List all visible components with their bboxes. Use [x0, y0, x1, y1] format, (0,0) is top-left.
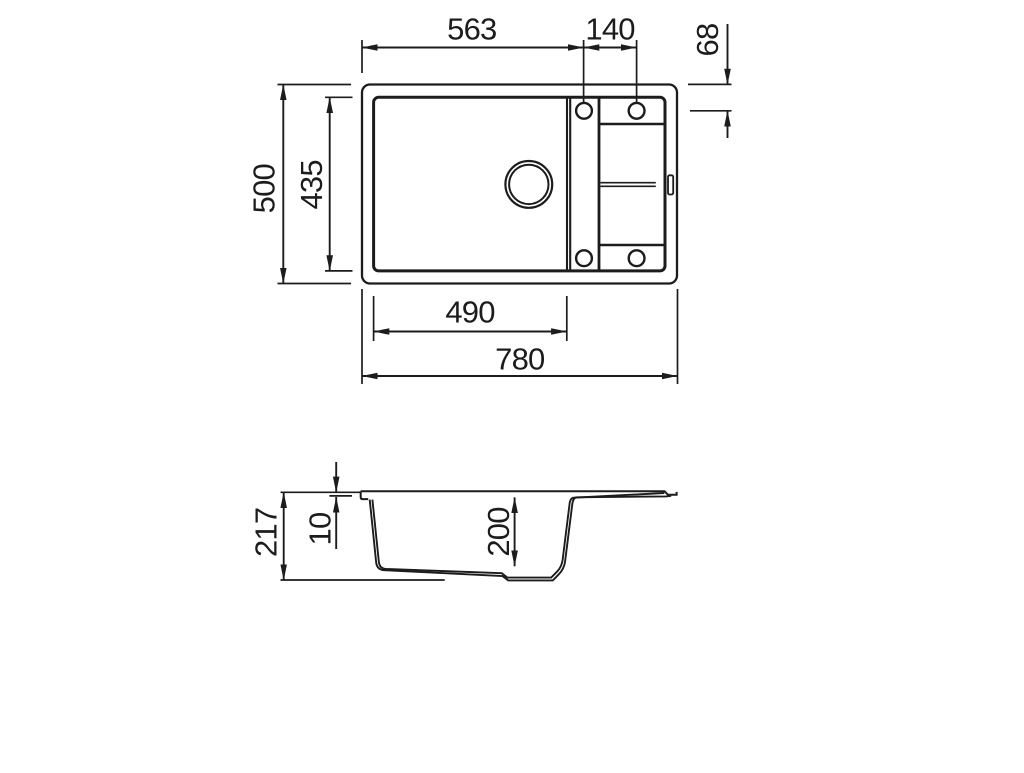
svg-text:435: 435 [294, 160, 329, 209]
svg-text:563: 563 [447, 12, 496, 47]
svg-text:490: 490 [445, 294, 495, 329]
svg-text:500: 500 [246, 163, 281, 213]
svg-text:217: 217 [248, 508, 283, 557]
svg-text:68: 68 [690, 24, 725, 57]
svg-text:140: 140 [585, 12, 635, 47]
svg-text:200: 200 [481, 507, 516, 557]
svg-text:10: 10 [303, 512, 338, 545]
svg-text:780: 780 [495, 341, 545, 376]
